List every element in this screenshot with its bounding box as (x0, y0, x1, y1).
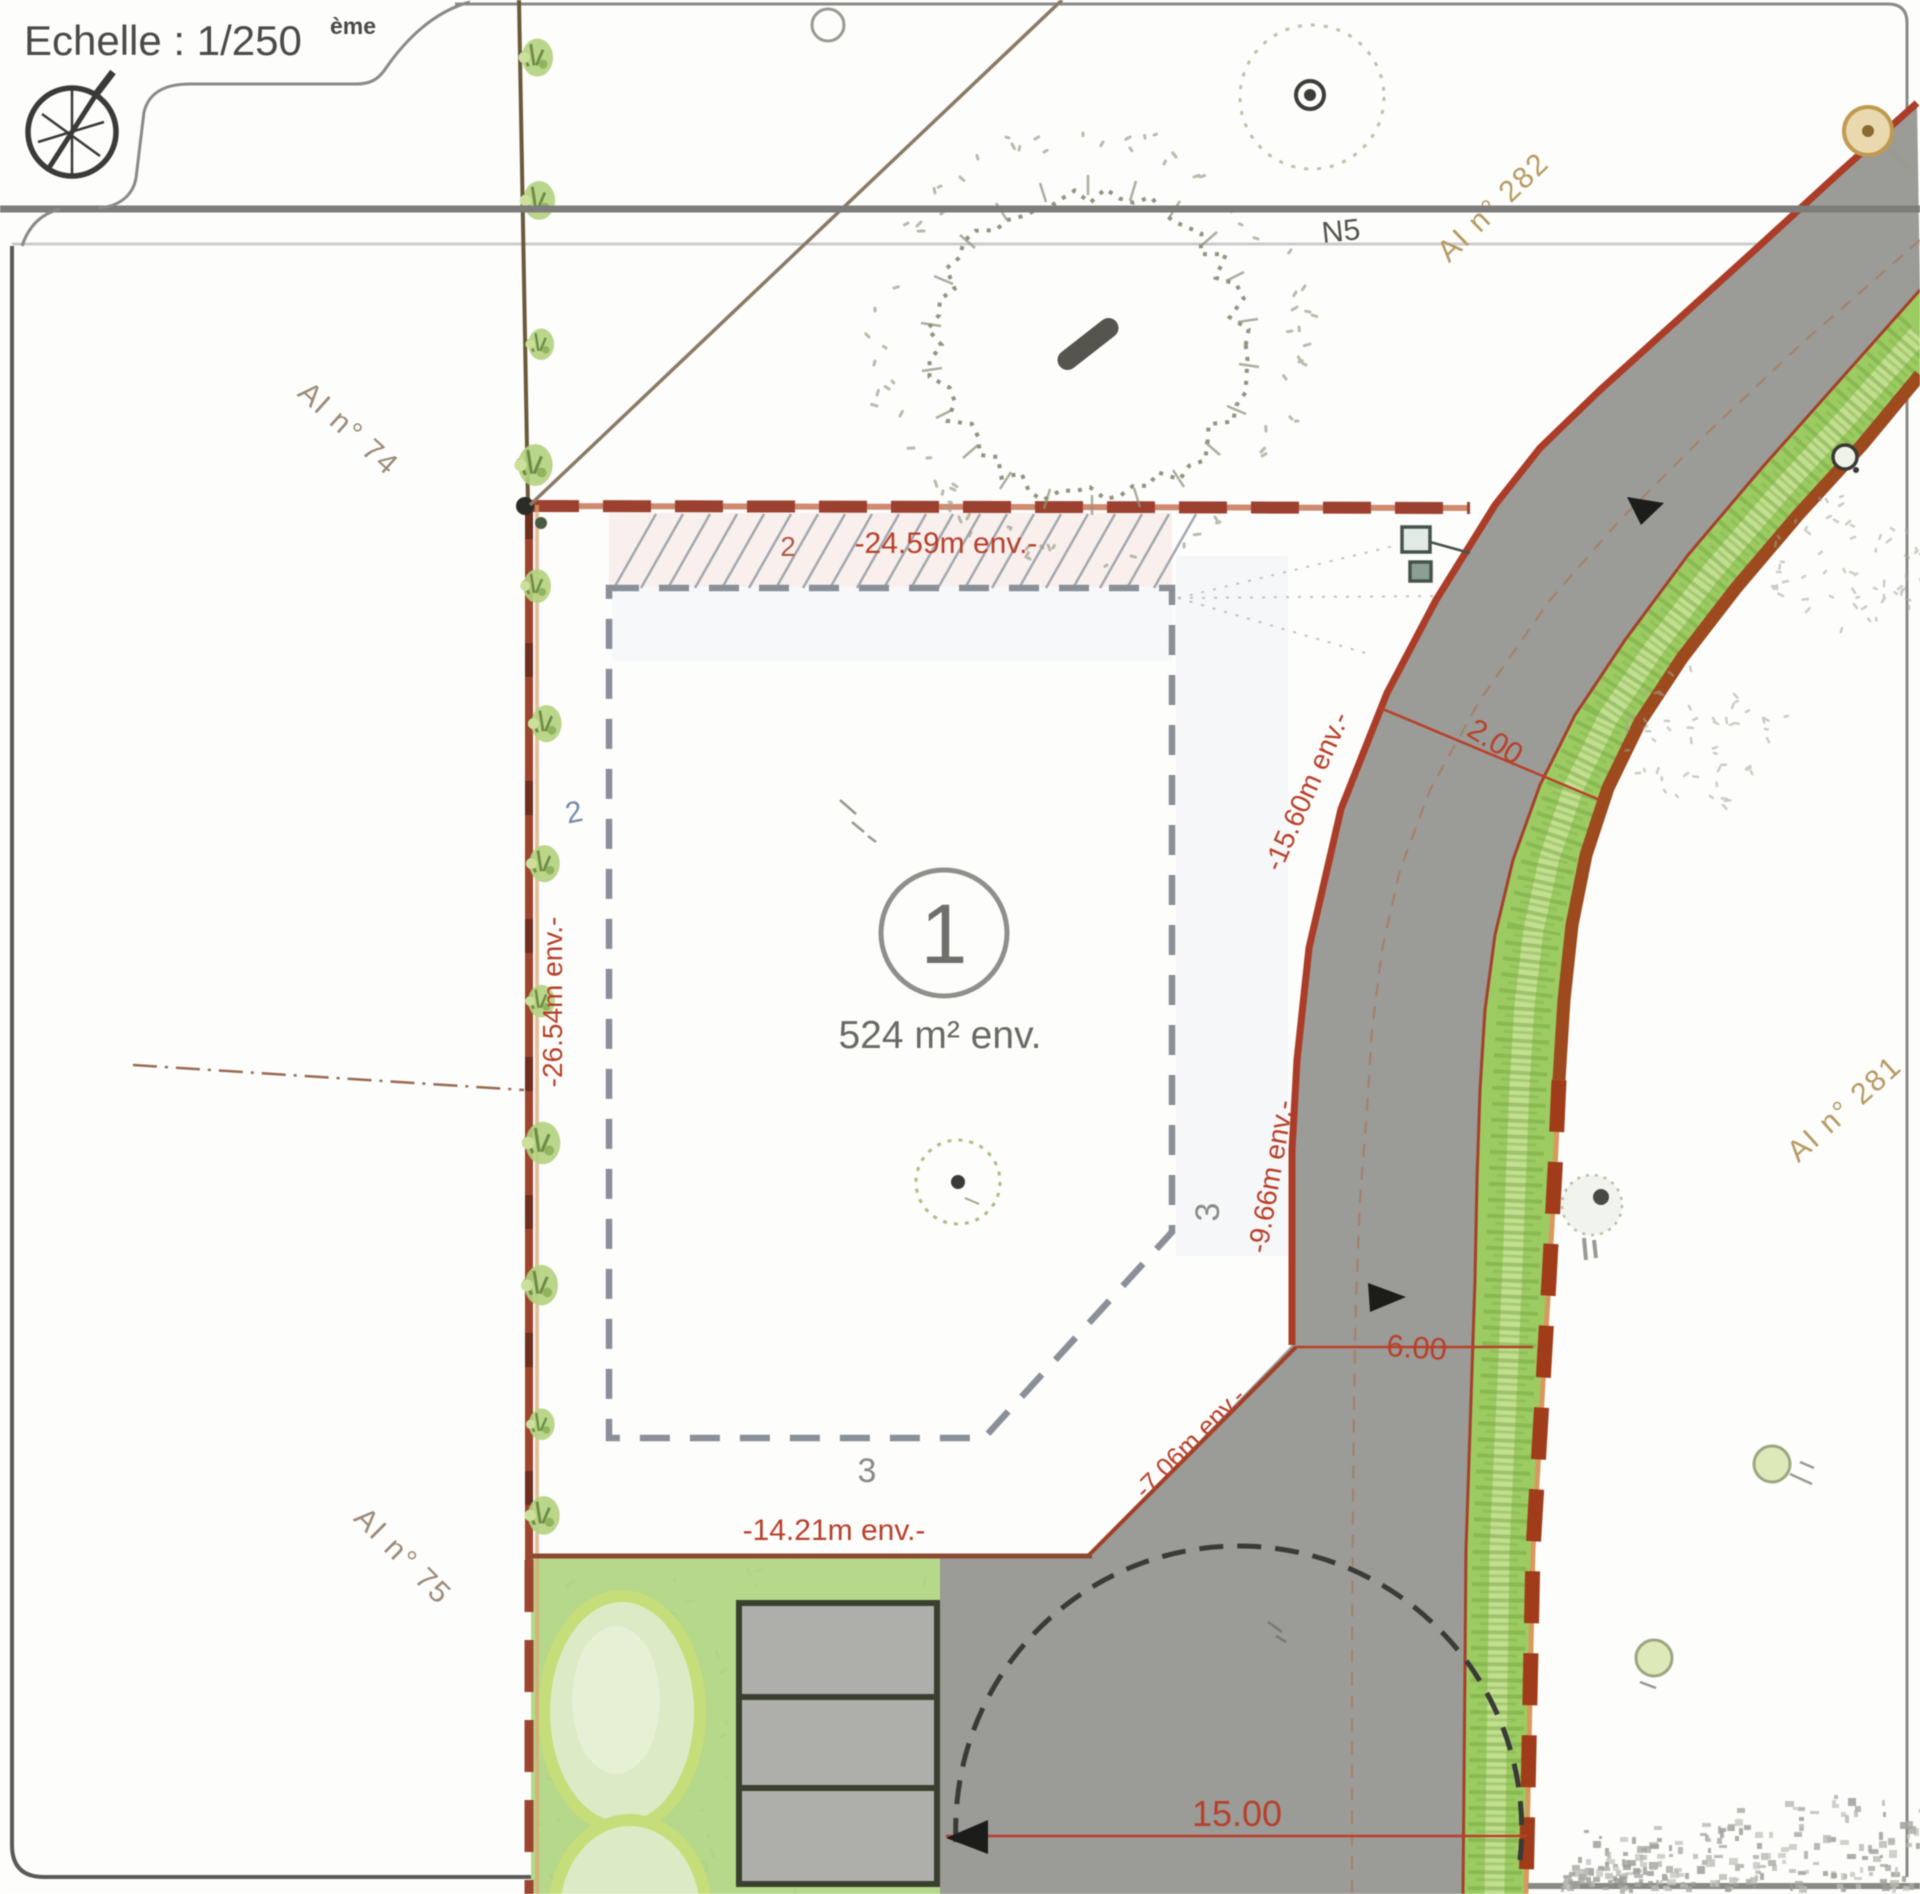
svg-text:Echelle : 1/250: Echelle : 1/250 (24, 17, 302, 64)
svg-text:3: 3 (858, 1452, 877, 1490)
svg-text:15.00: 15.00 (1192, 1793, 1282, 1834)
svg-text:524 m² env.: 524 m² env. (838, 1014, 1041, 1057)
svg-text:3: 3 (1189, 1203, 1227, 1222)
svg-text:6.00: 6.00 (1385, 1328, 1448, 1367)
svg-text:-24.59m env.-: -24.59m env.- (855, 527, 1038, 560)
svg-text:1: 1 (921, 887, 968, 981)
svg-text:ème: ème (330, 13, 376, 39)
svg-text:-26.54m env.-: -26.54m env.- (537, 917, 568, 1088)
svg-text:-14.21m env.-: -14.21m env.- (743, 1514, 926, 1547)
svg-text:N5: N5 (1320, 213, 1362, 250)
svg-text:2: 2 (780, 531, 796, 562)
